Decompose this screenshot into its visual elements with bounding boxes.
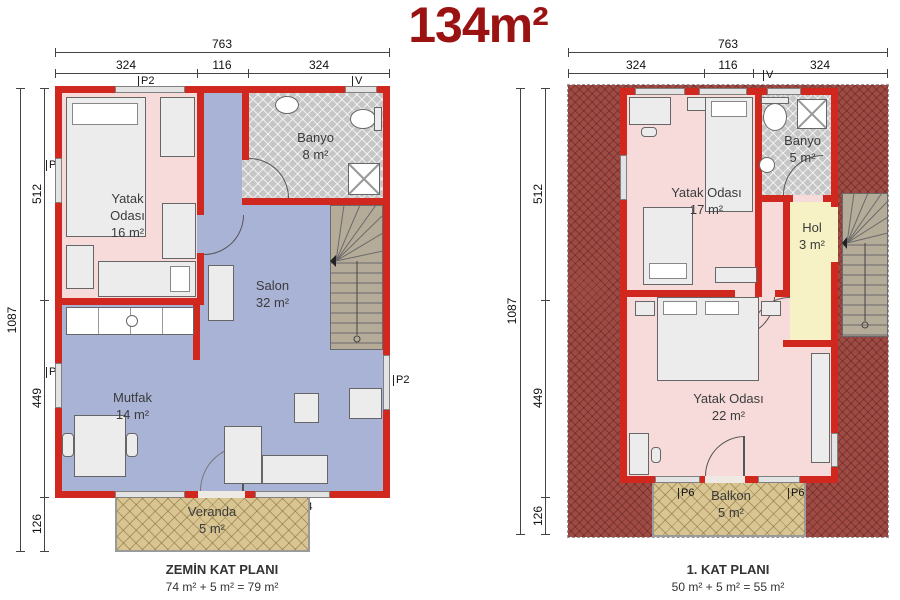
desk [629, 97, 671, 125]
dim-tick [40, 300, 49, 301]
dim-first-height-seg3: 126 [532, 504, 544, 528]
dim-first-width-seg1: 324 [624, 59, 648, 71]
sofa [262, 455, 328, 484]
room-label-veranda: Veranda 5 m² [157, 504, 267, 538]
chair [651, 447, 661, 463]
dim-ground-width-seg3: 324 [307, 59, 331, 71]
dim-tick [704, 69, 705, 78]
dresser [715, 267, 757, 283]
dresser [66, 245, 94, 289]
wall [242, 198, 383, 205]
floor-plan-first: Balkon 5 m² P6 P6 [568, 85, 888, 537]
shower [348, 163, 380, 195]
room-label-salon: Salon 32 m² [215, 278, 330, 312]
sink [275, 96, 299, 114]
floor-plan-ground: Yatak Odası 16 m² Banyo 8 m² Salon 32 m²… [55, 86, 390, 498]
bed-pillow [705, 301, 739, 315]
bed-pillow [649, 263, 687, 279]
room-label-bedroom-17: Yatak Odası 17 m² [649, 185, 764, 219]
window-label-p2: P2 [393, 375, 409, 386]
dining-table [74, 415, 126, 477]
entrance-door-gap [198, 491, 245, 498]
door-label-p6: P6 [788, 488, 804, 499]
shower [797, 99, 827, 129]
room-label-bedroom-22: Yatak Odası 22 m² [671, 391, 786, 425]
toilet [350, 109, 376, 129]
ground-plan-area: 74 m² + 5 m² = 79 m² [122, 580, 322, 594]
nightstand [635, 301, 655, 316]
dim-first-width-seg2: 116 [716, 59, 739, 71]
dim-ground-height-total: 1087 [6, 305, 18, 336]
dim-tick [753, 69, 754, 78]
nightstand [761, 301, 781, 316]
dim-line-ground-width-total [55, 52, 390, 53]
armchair [349, 388, 382, 419]
toilet-tank [374, 107, 382, 131]
vent-label-v: V [763, 70, 773, 81]
room-label-hall: Hol 3 m² [772, 220, 852, 254]
chair [126, 433, 138, 457]
kitchen-sink [126, 315, 138, 327]
toilet-tank [761, 97, 789, 104]
window-p6 [655, 476, 700, 483]
dim-first-width-seg3: 324 [808, 59, 832, 71]
dim-tick [541, 497, 550, 498]
dim-ground-height-seg1: 512 [31, 182, 43, 206]
balcony-door-gap [705, 476, 745, 483]
bed-pillow [711, 101, 747, 117]
window-p2 [699, 88, 747, 95]
window-v [767, 88, 801, 95]
page-title: 134m² [383, 0, 573, 50]
dim-ground-height-seg2: 449 [31, 386, 43, 410]
first-floor-apartment: Yatak Odası 17 m² Banyo 5 m² Hol 3 m² Ya… [620, 88, 838, 483]
bed-pillow [663, 301, 697, 315]
wall [783, 340, 831, 347]
staircase-treads [330, 205, 383, 350]
room-label-bathroom-8: Banyo 8 m² [258, 130, 373, 164]
dim-line-ground-height-total [20, 88, 21, 552]
window-p4 [255, 491, 330, 498]
dresser [687, 97, 707, 111]
desk [629, 433, 649, 475]
window-p2 [831, 433, 838, 467]
chair [62, 433, 74, 457]
dim-first-height-seg2: 449 [532, 386, 544, 410]
door-label-p6: P6 [678, 488, 694, 499]
first-plan-title: 1. KAT PLANI [628, 562, 828, 577]
ground-plan-title: ZEMİN KAT PLANI [122, 562, 322, 577]
wall [242, 93, 249, 160]
staircase-treads [842, 193, 888, 337]
coffee-table [294, 393, 319, 423]
dim-line-ground-height-segments [44, 88, 45, 552]
room-label-bathroom-5: Banyo 5 m² [745, 133, 860, 167]
bed-pillow [170, 266, 190, 292]
dim-line-first-height-total [520, 88, 521, 535]
window-p2 [55, 363, 62, 408]
door-leaf [743, 436, 745, 476]
window-p4 [115, 491, 185, 498]
veranda: Veranda 5 m² [115, 498, 310, 552]
dim-line-ground-width-segments [55, 73, 390, 74]
bed-pillow [72, 103, 138, 125]
dim-ground-width-seg1: 324 [114, 59, 138, 71]
room-label-bedroom-16: Yatak Odası 16 m² [70, 191, 185, 242]
wall [193, 305, 200, 360]
dim-line-first-width-segments [568, 73, 888, 74]
window-p2 [383, 355, 390, 410]
window-p2 [635, 88, 685, 95]
dim-ground-width-seg2: 116 [210, 59, 233, 71]
dim-ground-width-total: 763 [210, 38, 234, 50]
desk [160, 97, 195, 157]
dim-tick [248, 69, 249, 78]
chair [641, 127, 657, 137]
wall [62, 298, 204, 305]
window-v [345, 86, 377, 93]
staircase [330, 205, 383, 350]
sofa-chaise [224, 426, 262, 484]
dim-tick [197, 69, 198, 78]
dim-first-height-seg1: 512 [532, 182, 544, 206]
dim-ground-height-seg3: 126 [31, 512, 43, 536]
first-plan-area: 50 m² + 5 m² = 55 m² [628, 580, 828, 594]
dim-tick [40, 497, 49, 498]
window-p6 [758, 476, 800, 483]
dim-line-first-height-segments [545, 88, 546, 535]
window-p2 [620, 155, 627, 200]
door-arc-bedroom [204, 215, 244, 255]
staircase [842, 193, 888, 337]
wardrobe [811, 353, 830, 463]
floor-plan-sheet: 134m² 763 324 116 324 1087 512 449 126 P… [0, 0, 900, 600]
door-arc-balcony [705, 436, 745, 476]
room-label-kitchen: Mutfak 14 m² [75, 390, 190, 424]
dim-first-width-total: 763 [716, 38, 740, 50]
toilet [763, 103, 787, 131]
window-p2 [55, 158, 62, 203]
dim-line-first-width-total [568, 52, 888, 53]
dim-tick [541, 300, 550, 301]
wall [627, 290, 735, 297]
balcony: Balkon 5 m² [652, 480, 806, 537]
window-p2 [115, 86, 185, 93]
wall [823, 195, 831, 202]
wall [197, 93, 204, 215]
dim-first-height-total: 1087 [506, 296, 518, 327]
